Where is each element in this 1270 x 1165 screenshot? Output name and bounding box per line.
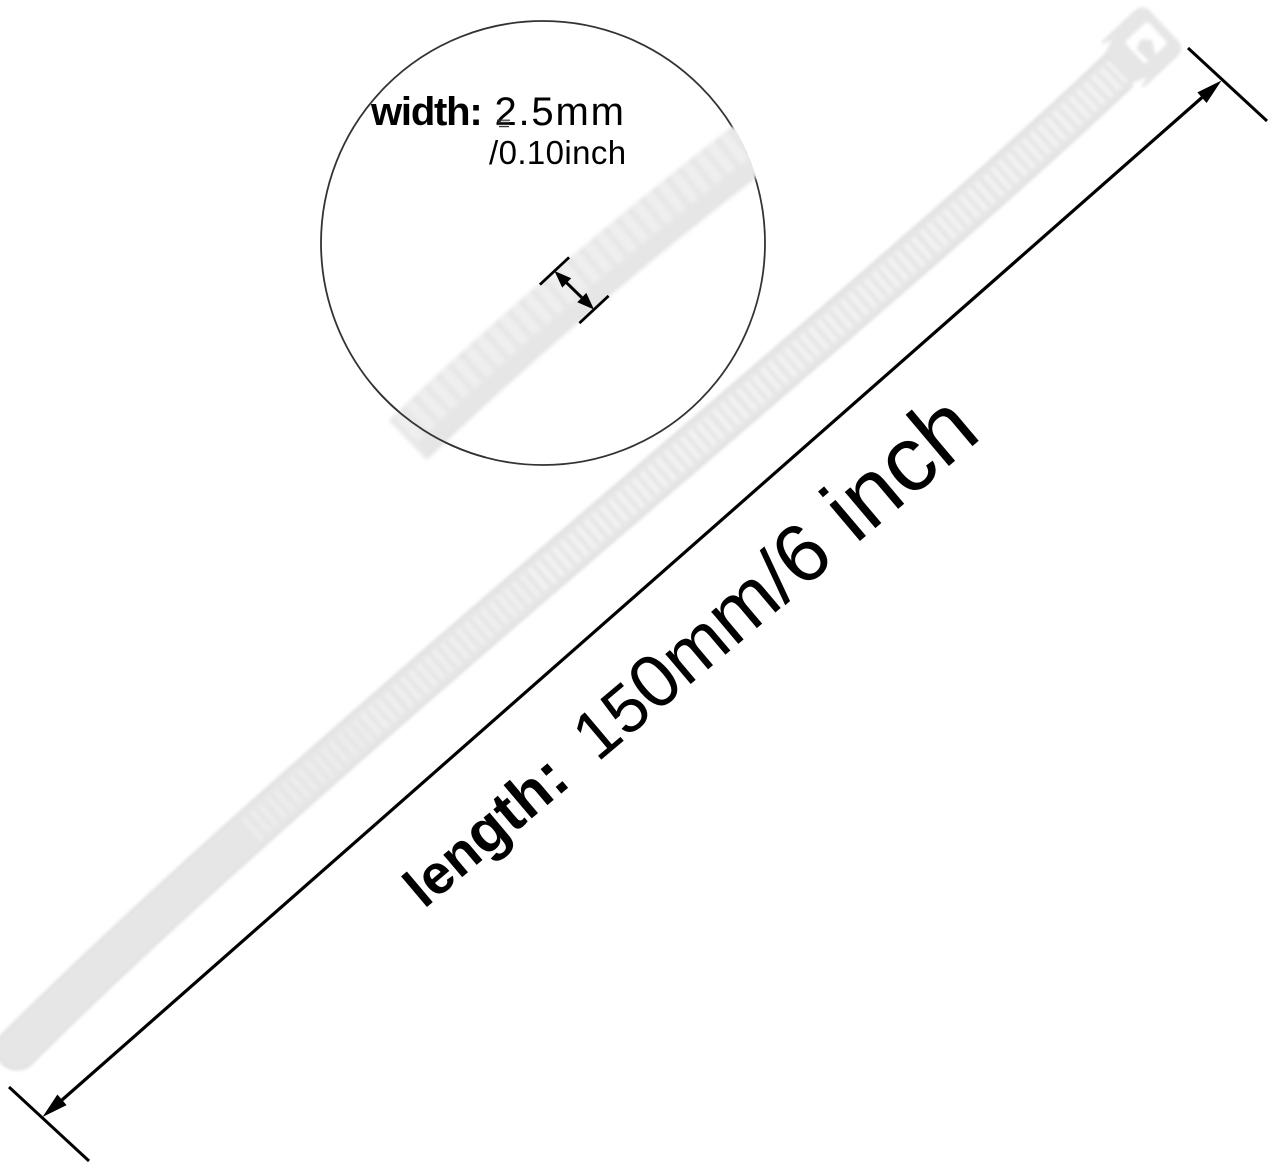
svg-text:width: 2.5mm: width: 2.5mm xyxy=(370,90,626,134)
svg-text:/0.10inch: /0.10inch xyxy=(489,134,627,171)
